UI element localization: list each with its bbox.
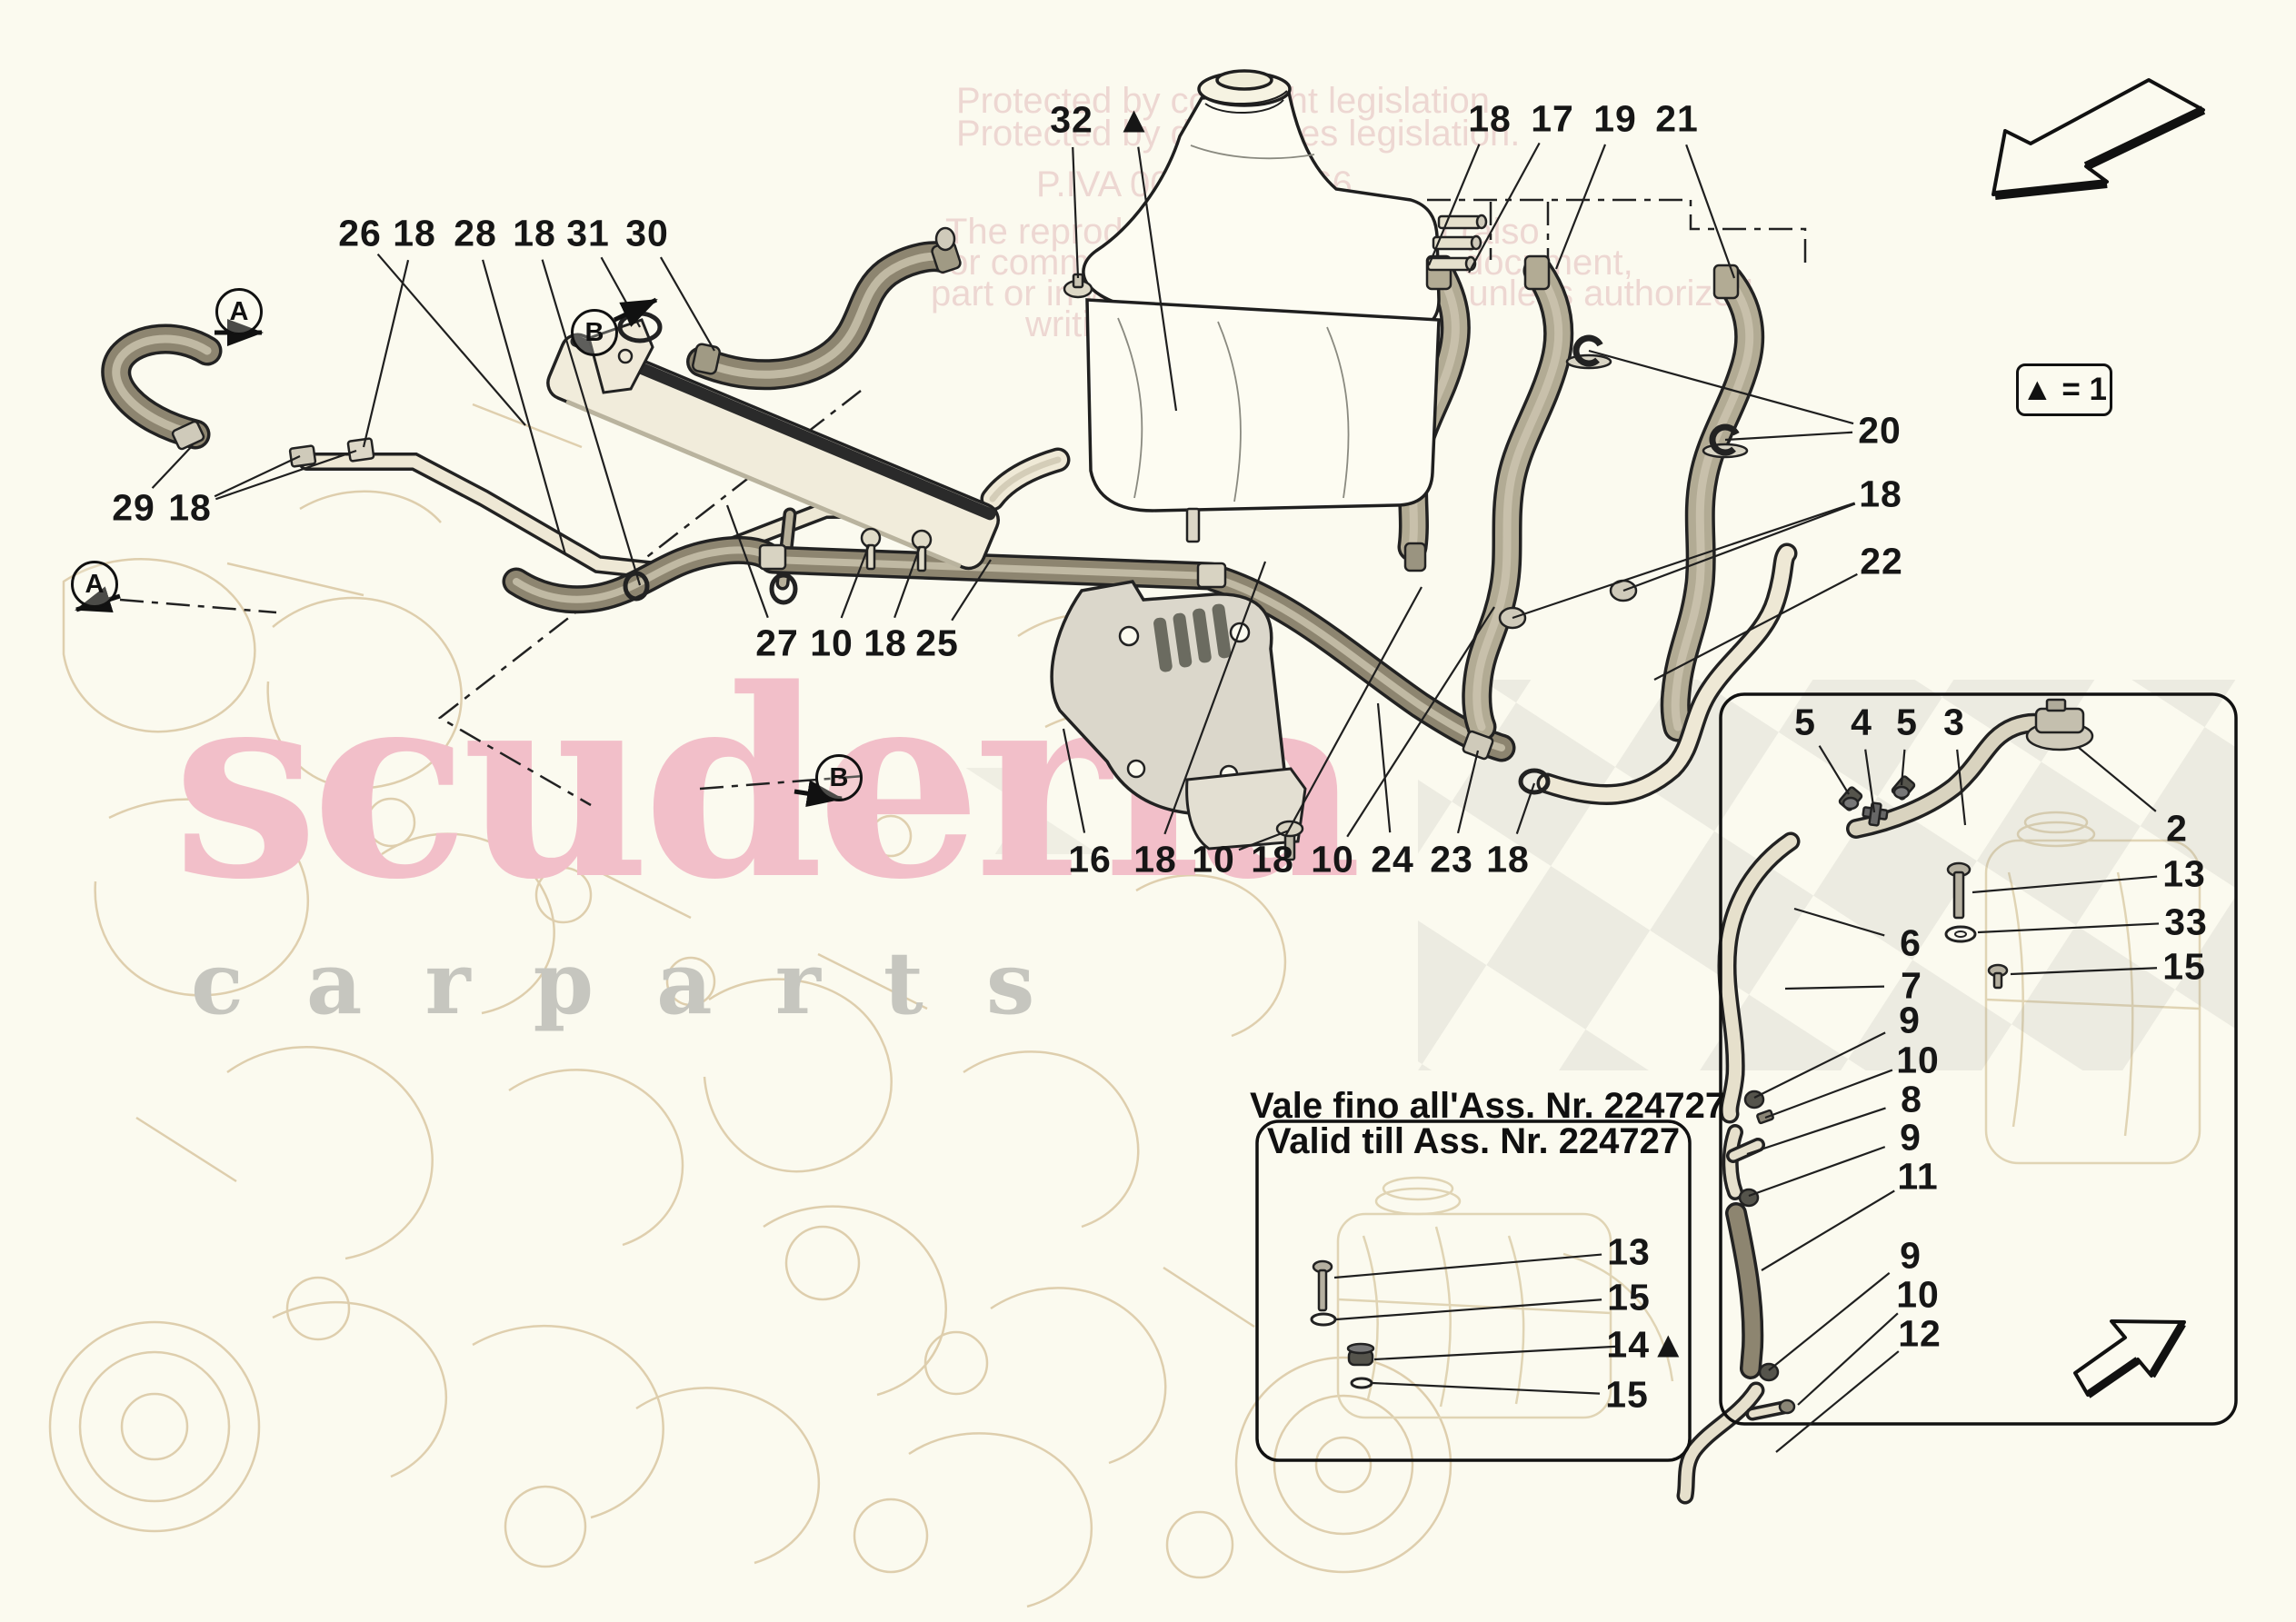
- valid-till-title-english: Valid till Ass. Nr. 224727: [1250, 1121, 1697, 1162]
- callout-label-18: 18: [1486, 839, 1530, 881]
- leader-line: [364, 260, 408, 447]
- leader-line: [1765, 1070, 1892, 1118]
- callout-label-9: 9: [1899, 1000, 1921, 1042]
- fitting: [1312, 1314, 1335, 1325]
- view-arrow-bottom-right: [2075, 1321, 2184, 1395]
- callout-label-9: 9: [1900, 1235, 1922, 1278]
- callout-label-15: 15: [1605, 1374, 1649, 1417]
- fitting: [1780, 1400, 1794, 1413]
- fitting: [1319, 1270, 1326, 1310]
- callout-label-3: 3: [1943, 702, 1965, 744]
- callout-label-25: 25: [915, 622, 959, 665]
- callout-label-32: 32: [1050, 99, 1093, 142]
- leader-line: [215, 451, 356, 499]
- fitting: [1954, 872, 1963, 918]
- fitting: [1352, 1378, 1372, 1388]
- callout-label-13: 13: [2162, 853, 2206, 896]
- callout-label-8: 8: [1901, 1079, 1922, 1121]
- leader-line: [661, 257, 714, 351]
- fitting: [1187, 509, 1199, 542]
- leader-line: [1749, 1147, 1885, 1196]
- callout-label-15: 15: [1607, 1277, 1651, 1319]
- leader-line: [1623, 504, 1855, 591]
- callout-label-4: 4: [1851, 702, 1872, 744]
- callout-label-19: 19: [1593, 98, 1637, 141]
- fitting: [936, 228, 954, 250]
- callout-label-10: 10: [1896, 1040, 1940, 1082]
- callout-label-21: 21: [1655, 98, 1699, 141]
- fitting: [1198, 563, 1225, 587]
- leader-line: [1373, 1383, 1600, 1394]
- callout-label-10: 10: [1311, 839, 1354, 881]
- callout-label-9: 9: [1900, 1117, 1922, 1159]
- callout-label-28: 28: [454, 213, 497, 255]
- callout-label-18: 18: [1251, 839, 1294, 881]
- leader-line: [153, 445, 193, 488]
- callout-label-24: 24: [1371, 839, 1414, 881]
- fitting: [290, 445, 316, 466]
- leader-line: [1334, 1255, 1602, 1278]
- callout-label-30: 30: [625, 213, 669, 255]
- fitting: [1740, 1189, 1758, 1206]
- callout-label-10: 10: [810, 622, 854, 665]
- fitting: [760, 545, 785, 569]
- view-marker-A: A: [71, 561, 118, 608]
- fitting: [1428, 258, 1470, 270]
- callout-label-2: 2: [2166, 808, 2188, 851]
- fitting: [1843, 798, 1858, 809]
- callout-label-14tri: 14▲: [1606, 1324, 1687, 1367]
- leader-line: [1769, 1273, 1890, 1370]
- legend-triangle-equals-one: ▲ = 1: [2016, 363, 2112, 416]
- fitting: [692, 343, 721, 375]
- fitting: [1472, 236, 1481, 249]
- fitting: [1405, 543, 1425, 571]
- view-marker-B: B: [815, 754, 863, 801]
- callout-label-18: 18: [1859, 473, 1902, 516]
- callout-label-23: 23: [1430, 839, 1473, 881]
- callout-label-18: 18: [513, 213, 556, 255]
- callout-label-20: 20: [1858, 410, 1902, 453]
- callout-label-17: 17: [1531, 98, 1574, 141]
- view-marker-A: A: [215, 288, 263, 335]
- fitting: [1994, 973, 2002, 988]
- leader-line: [1686, 144, 1734, 278]
- fitting: [2047, 700, 2065, 711]
- view-marker-B: B: [571, 309, 618, 356]
- callout-label-5: 5: [1794, 702, 1816, 744]
- fitting: [1477, 215, 1486, 228]
- callout-label-11: 11: [1897, 1156, 1938, 1199]
- callout-label-26: 26: [338, 213, 382, 255]
- callout-label-tri: ▲: [1115, 99, 1153, 142]
- fitting: [2036, 709, 2083, 732]
- callout-label-5: 5: [1896, 702, 1918, 744]
- callout-label-12: 12: [1898, 1313, 1942, 1356]
- callout-label-15: 15: [2162, 946, 2206, 989]
- fitting: [1894, 787, 1909, 798]
- watermark-subword: c a r p a r t s: [191, 933, 1051, 1034]
- leader-line: [1725, 433, 1852, 440]
- callout-label-13: 13: [1607, 1231, 1651, 1274]
- leader-line: [1762, 1190, 1894, 1270]
- callout-label-18: 18: [863, 622, 907, 665]
- fitting: [1869, 802, 1881, 825]
- callout-label-18: 18: [1468, 98, 1512, 141]
- leader-line: [1776, 1351, 1899, 1452]
- fitting: [1525, 256, 1549, 289]
- leader-line: [215, 456, 300, 496]
- callout-label-10: 10: [1192, 839, 1235, 881]
- leader-line: [1378, 703, 1390, 832]
- fitting: [1348, 1344, 1373, 1353]
- leader-line: [1374, 1347, 1620, 1359]
- callout-label-10: 10: [1896, 1274, 1940, 1317]
- fitting: [348, 438, 374, 461]
- callout-label-16: 16: [1068, 839, 1112, 881]
- view-arrow-top-right: [1993, 80, 2203, 195]
- callout-label-29: 29: [112, 487, 155, 530]
- fitting: [1714, 265, 1738, 298]
- callout-label-18: 18: [393, 213, 436, 255]
- callout-label-31: 31: [566, 213, 610, 255]
- callout-label-6: 6: [1900, 922, 1922, 965]
- callout-label-18: 18: [1133, 839, 1177, 881]
- leader-line: [1798, 1313, 1898, 1405]
- callout-label-18: 18: [168, 487, 212, 530]
- parts-diagram-stage: scuderia c a r p a r t s Protected by co…: [0, 0, 2296, 1622]
- callout-label-22: 22: [1860, 541, 1903, 583]
- leader-line: [378, 254, 525, 425]
- callout-label-27: 27: [755, 622, 799, 665]
- callout-label-33: 33: [2164, 901, 2208, 944]
